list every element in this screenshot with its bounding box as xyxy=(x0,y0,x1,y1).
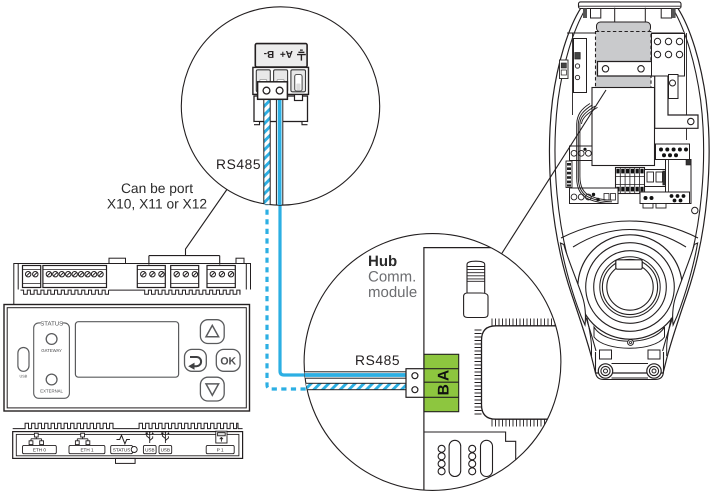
svg-text:RS485: RS485 xyxy=(355,353,400,368)
svg-text:Can be port: Can be port xyxy=(121,181,193,196)
svg-text:P 1: P 1 xyxy=(217,448,224,453)
svg-text:GATEWAY: GATEWAY xyxy=(41,348,62,353)
svg-text:Comm.: Comm. xyxy=(368,269,416,286)
svg-text:A+: A+ xyxy=(280,48,293,59)
svg-text:STATUS: STATUS xyxy=(40,321,63,328)
svg-text:Hub: Hub xyxy=(368,253,397,270)
svg-text:USB: USB xyxy=(19,375,27,379)
svg-text:ETH 1: ETH 1 xyxy=(80,448,93,453)
svg-text:module: module xyxy=(368,284,417,301)
svg-text:USB: USB xyxy=(145,448,154,453)
svg-text:EXTERNAL: EXTERNAL xyxy=(40,388,63,393)
svg-text:ETH 0: ETH 0 xyxy=(33,448,46,453)
svg-text:RS485: RS485 xyxy=(216,157,261,172)
svg-text:X10, X11 or X12: X10, X11 or X12 xyxy=(107,197,207,212)
svg-text:A: A xyxy=(436,370,453,381)
svg-text:STATUS: STATUS xyxy=(113,448,130,453)
svg-text:USB: USB xyxy=(161,448,170,453)
svg-text:OK: OK xyxy=(220,356,236,368)
svg-text:B: B xyxy=(436,384,453,395)
svg-text:B-: B- xyxy=(264,48,275,59)
